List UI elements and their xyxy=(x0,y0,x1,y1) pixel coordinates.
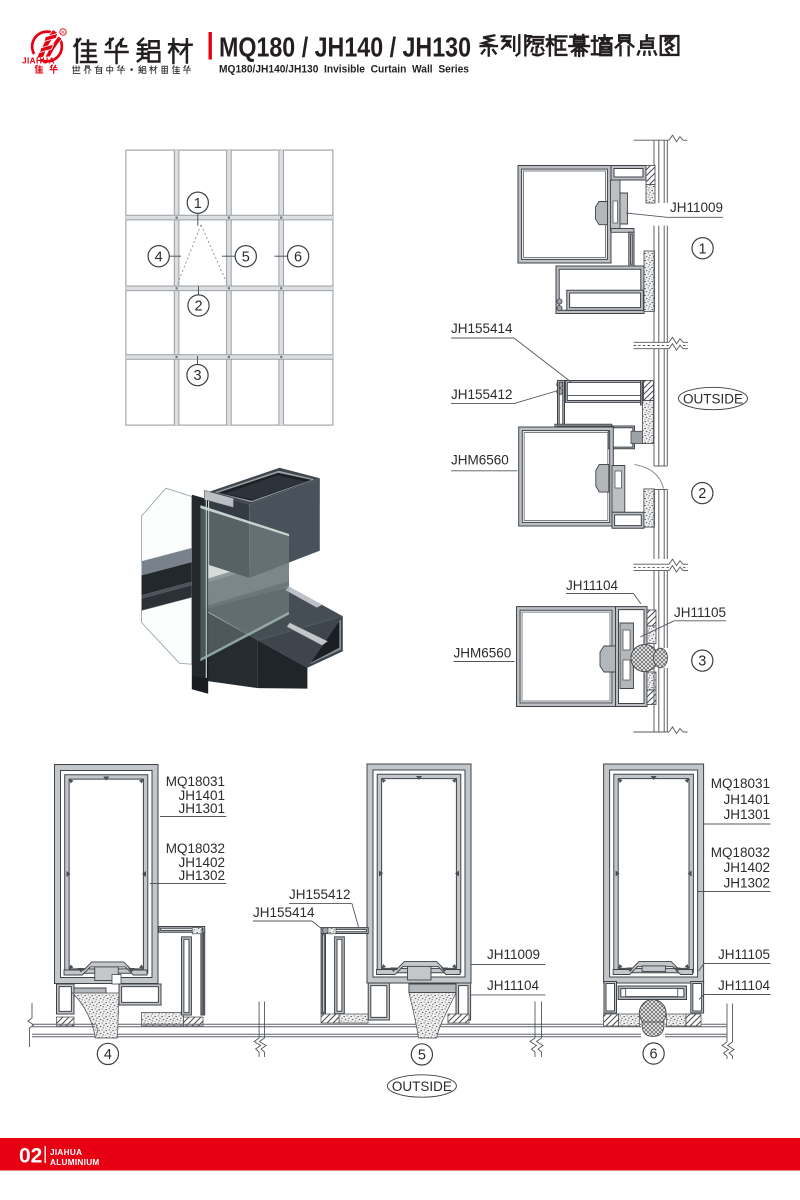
svg-text:ALUMINIUM: ALUMINIUM xyxy=(50,1158,100,1167)
svg-text:JH11104: JH11104 xyxy=(566,578,619,593)
svg-text:JH1302: JH1302 xyxy=(723,876,770,891)
svg-text:JH1302: JH1302 xyxy=(178,868,225,883)
svg-text:JH155412: JH155412 xyxy=(289,887,351,902)
svg-text:MQ18031: MQ18031 xyxy=(166,774,225,789)
svg-text:MQ180 / JH140 / JH130: MQ180 / JH140 / JH130 xyxy=(219,32,471,63)
svg-text:JH155412: JH155412 xyxy=(451,387,513,402)
svg-text:JH11009: JH11009 xyxy=(670,200,723,215)
svg-text:JIAHUA: JIAHUA xyxy=(50,1148,82,1157)
svg-text:OUTSIDE: OUTSIDE xyxy=(683,391,743,406)
svg-text:JH11105: JH11105 xyxy=(718,947,770,962)
svg-text:3: 3 xyxy=(698,654,706,670)
svg-text:6: 6 xyxy=(650,1047,658,1063)
svg-text:JH11104: JH11104 xyxy=(718,978,771,993)
svg-text:JH11009: JH11009 xyxy=(487,947,540,962)
svg-text:6: 6 xyxy=(294,249,302,265)
svg-text:1: 1 xyxy=(699,241,707,257)
svg-text:MQ18031: MQ18031 xyxy=(711,776,770,791)
svg-text:JIAHUA: JIAHUA xyxy=(22,57,55,66)
svg-text:JH1401: JH1401 xyxy=(723,792,770,807)
svg-text:2: 2 xyxy=(698,486,706,502)
svg-text:JHM6560: JHM6560 xyxy=(454,646,512,661)
svg-text:2: 2 xyxy=(194,299,202,315)
svg-text:JH1301: JH1301 xyxy=(723,807,770,822)
svg-text:MQ18032: MQ18032 xyxy=(711,845,770,860)
svg-text:JH1402: JH1402 xyxy=(723,860,770,875)
svg-text:JH1301: JH1301 xyxy=(178,801,225,816)
svg-text:JH155414: JH155414 xyxy=(451,321,513,336)
svg-text:02: 02 xyxy=(19,1145,42,1168)
svg-text:JH155414: JH155414 xyxy=(253,905,315,920)
svg-text:4: 4 xyxy=(104,1047,112,1063)
svg-text:JH11104: JH11104 xyxy=(487,978,540,993)
svg-text:MQ180/JH140/JH130 Invisible: MQ180/JH140/JH130 Invisible Curtain Wall… xyxy=(219,64,469,76)
svg-text:3: 3 xyxy=(193,368,201,384)
svg-text:1: 1 xyxy=(194,196,202,212)
svg-text:MQ18032: MQ18032 xyxy=(166,841,225,856)
svg-text:JH11105: JH11105 xyxy=(674,605,726,620)
svg-text:4: 4 xyxy=(155,249,163,265)
svg-text:JHM6560: JHM6560 xyxy=(451,453,509,468)
svg-text:5: 5 xyxy=(242,249,250,265)
svg-text:OUTSIDE: OUTSIDE xyxy=(392,1079,452,1094)
svg-text:5: 5 xyxy=(418,1048,426,1064)
